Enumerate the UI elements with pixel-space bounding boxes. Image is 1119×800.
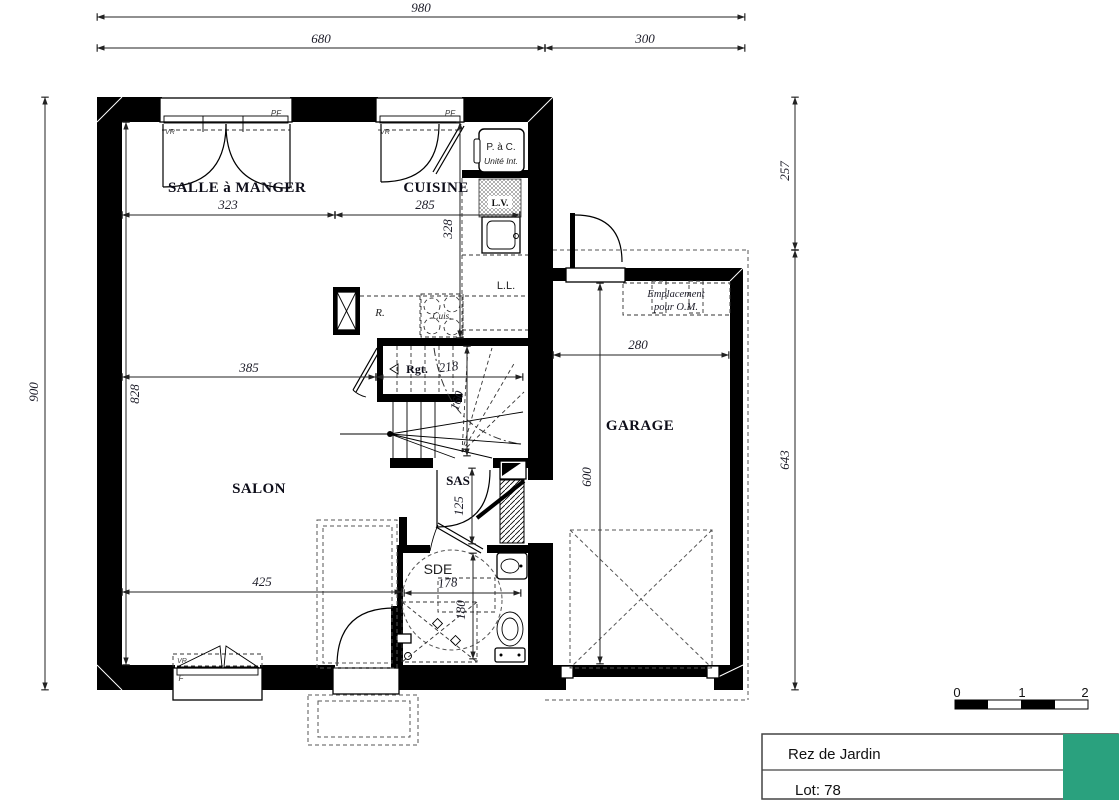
wall-stair-bottom-left — [390, 458, 433, 468]
storage-door-leaf — [353, 348, 377, 390]
scale-bar: 0 1 2 — [953, 685, 1088, 709]
toilet-bowl-inner — [502, 618, 518, 640]
storage-door-swing — [353, 390, 366, 397]
living-window-opening-triangle — [224, 646, 258, 667]
hob-burner — [444, 296, 460, 312]
room-label-living: SALON — [232, 481, 286, 497]
scale-bar-segment — [1021, 700, 1055, 709]
om-label-line1: Emplacement — [646, 289, 705, 300]
garage-service-door-swing — [575, 215, 622, 262]
wall-house-garage — [528, 97, 553, 690]
dishwasher-label: L.V. — [492, 199, 509, 209]
dim-stair-width: 218 — [438, 358, 460, 375]
dim-garage-inner-depth: 600 — [579, 467, 594, 487]
room-label-kitchen: CUISINE — [403, 180, 468, 196]
wall-sde-top-left — [397, 545, 430, 553]
porch-inner-dashed — [318, 701, 410, 737]
dim-sde-depth: 180 — [453, 600, 468, 620]
dim-kitchen-depth: 328 — [440, 219, 455, 240]
garage-service-threshold — [566, 268, 625, 282]
roof-overhang-dashed — [545, 250, 748, 700]
garage-door-closed-line — [568, 668, 712, 677]
room-label-sde: SDE — [424, 561, 453, 577]
wall-left — [97, 97, 122, 690]
dim-kitchen-width: 285 — [415, 197, 435, 212]
lot-number: Lot: 78 — [795, 782, 841, 799]
sde-door-leaf — [436, 527, 481, 553]
wall-stair-left — [377, 338, 383, 402]
hob-burner — [444, 319, 460, 335]
opening-garage-door — [566, 677, 714, 690]
wall-sas-salon — [399, 517, 407, 549]
toilet-button — [500, 654, 503, 657]
scale-tick-1: 1 — [1018, 685, 1025, 700]
shower-drain — [405, 653, 412, 660]
dim-right-top: 257 — [777, 161, 792, 181]
title-block-accent — [1063, 734, 1119, 800]
floor-name: Rez de Jardin — [788, 746, 881, 763]
om-label-line2: pour O.M. — [653, 302, 698, 313]
room-label-sas: SAS — [446, 473, 470, 488]
entry-door-swing — [337, 608, 394, 666]
kitchen-window-type-label: PF — [445, 109, 456, 118]
fridge-label: R. — [374, 307, 384, 319]
garage-service-door-leaf — [570, 213, 575, 268]
hob-label: Cuis. — [433, 311, 452, 321]
dim-garage-width: 300 — [634, 31, 655, 46]
dim-stair-depth: 160 — [447, 389, 467, 413]
washer-label: L.L. — [497, 280, 515, 292]
dim-right-bottom: 643 — [777, 450, 792, 470]
room-label-storage: Rgt. — [406, 362, 428, 376]
salon-dashed-zone-outer — [317, 520, 397, 668]
room-label-garage: GARAGE — [606, 418, 674, 434]
dim-living-width-low: 425 — [252, 574, 272, 589]
living-shutter-label: VR — [177, 658, 187, 665]
heat-pump-sublabel: Unité Int. — [484, 156, 518, 166]
sde-door-leaf — [438, 523, 483, 549]
entry-door-leaf — [391, 606, 397, 668]
wall-garage-right — [730, 268, 743, 690]
sde-door-swing — [430, 525, 438, 551]
scale-tick-2: 2 — [1081, 685, 1088, 700]
dim-overall-depth: 900 — [26, 382, 41, 402]
dining-window-type-label: PF — [271, 109, 282, 118]
room-label-dining: SALLE à MANGER — [168, 180, 306, 196]
stair-winder-dashed — [462, 346, 524, 452]
dim-interior-depth: 828 — [127, 384, 142, 404]
kitchen-door-ajar-leaf — [433, 124, 461, 172]
shower-symbol — [451, 636, 461, 646]
title-block: Rez de Jardin Lot: 78 — [762, 734, 1119, 800]
salon-dashed-zone-inner — [323, 526, 392, 663]
kitchen-shutter-label: VR — [380, 129, 390, 136]
wall-stair-top — [377, 338, 528, 346]
room-labels: SALLE à MANGER CUISINE SALON GARAGE SAS … — [168, 180, 674, 577]
heat-pump-tab — [474, 139, 480, 163]
shower-symbol — [433, 619, 443, 629]
dim-house-width: 680 — [311, 31, 331, 46]
dim-dining-width: 323 — [217, 197, 238, 212]
storage-door-leaf — [356, 350, 380, 392]
kitchen-sink — [482, 217, 520, 253]
floor-plan-sheet: 980 680 300 900 828 257 643 323 285 328 … — [0, 0, 1119, 800]
dim-living-width-mid: 385 — [238, 360, 259, 375]
wall-sde-top-right — [487, 545, 528, 553]
toilet-button — [518, 654, 521, 657]
entry-door-sill — [333, 668, 399, 694]
living-window-frame — [173, 668, 262, 700]
washbasin-faucet — [520, 565, 523, 568]
floor-plan-drawing: 980 680 300 900 828 257 643 323 285 328 … — [0, 0, 1119, 800]
scale-tick-0: 0 — [953, 685, 960, 700]
dim-garage-inner-width: 280 — [628, 337, 648, 352]
opening-sas-garage-door — [528, 480, 553, 543]
dining-shutter-label: VR — [165, 129, 175, 136]
scale-bar-segment — [955, 700, 988, 709]
dining-door-swing-right — [226, 124, 290, 188]
dim-overall-width: 980 — [411, 0, 431, 15]
shower-mixer — [397, 634, 411, 643]
dim-sas-depth: 125 — [451, 496, 466, 516]
heat-pump-label: P. à C. — [486, 142, 515, 153]
toilet-bowl — [497, 612, 523, 646]
